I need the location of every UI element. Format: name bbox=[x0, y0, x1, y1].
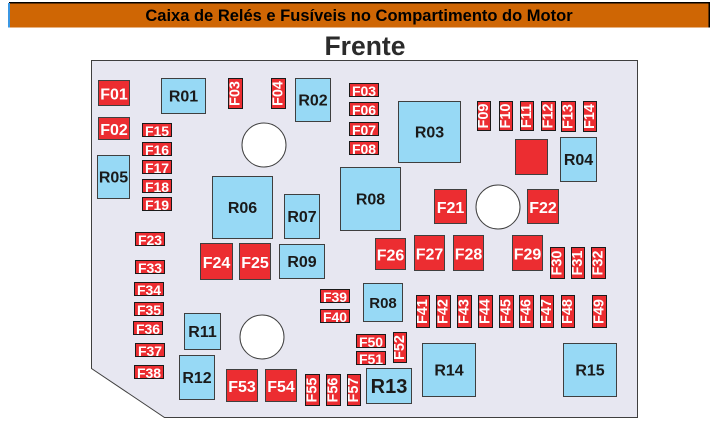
svg-text:F25: F25 bbox=[241, 255, 269, 272]
svg-text:F29: F29 bbox=[514, 247, 542, 264]
svg-text:F22: F22 bbox=[529, 200, 557, 217]
svg-text:R11: R11 bbox=[188, 324, 217, 341]
svg-text:F04: F04 bbox=[271, 81, 287, 106]
svg-text:F43: F43 bbox=[457, 299, 473, 324]
svg-text:F09: F09 bbox=[476, 104, 492, 129]
svg-text:F24: F24 bbox=[203, 255, 231, 272]
svg-text:F53: F53 bbox=[228, 379, 256, 396]
svg-text:R01: R01 bbox=[169, 89, 198, 106]
svg-text:F56: F56 bbox=[326, 378, 342, 403]
svg-text:F50: F50 bbox=[359, 334, 383, 350]
svg-text:R05: R05 bbox=[99, 170, 128, 187]
svg-text:F46: F46 bbox=[519, 299, 535, 324]
svg-text:F54: F54 bbox=[267, 379, 295, 396]
svg-text:F32: F32 bbox=[591, 251, 607, 276]
svg-text:F44: F44 bbox=[478, 299, 494, 324]
svg-text:F34: F34 bbox=[137, 282, 161, 298]
svg-text:R08: R08 bbox=[369, 295, 397, 312]
svg-text:F02: F02 bbox=[100, 122, 128, 139]
svg-text:R07: R07 bbox=[287, 209, 316, 226]
svg-text:F37: F37 bbox=[138, 343, 162, 359]
svg-text:F27: F27 bbox=[416, 247, 444, 264]
svg-text:F03: F03 bbox=[352, 83, 376, 99]
svg-text:F16: F16 bbox=[145, 142, 169, 158]
svg-text:F47: F47 bbox=[539, 299, 555, 324]
svg-text:F11: F11 bbox=[519, 104, 535, 128]
svg-text:F15: F15 bbox=[145, 123, 169, 139]
svg-text:F18: F18 bbox=[145, 179, 169, 195]
svg-text:F41: F41 bbox=[415, 299, 431, 324]
svg-text:R15: R15 bbox=[575, 363, 604, 380]
svg-text:Frente: Frente bbox=[325, 31, 406, 61]
svg-text:R06: R06 bbox=[228, 200, 257, 217]
svg-text:F17: F17 bbox=[145, 160, 169, 176]
svg-text:F35: F35 bbox=[137, 302, 161, 318]
svg-text:F26: F26 bbox=[377, 248, 405, 265]
svg-text:F36: F36 bbox=[136, 321, 160, 337]
svg-text:F01: F01 bbox=[100, 87, 128, 104]
svg-text:F07: F07 bbox=[352, 122, 376, 138]
svg-text:F39: F39 bbox=[323, 289, 347, 305]
svg-text:F51: F51 bbox=[359, 351, 383, 367]
svg-text:R03: R03 bbox=[415, 125, 444, 142]
svg-text:F42: F42 bbox=[436, 299, 452, 324]
svg-text:R13: R13 bbox=[371, 376, 408, 398]
svg-text:F12: F12 bbox=[541, 104, 557, 129]
svg-text:F03: F03 bbox=[228, 81, 244, 106]
svg-text:F14: F14 bbox=[582, 104, 598, 129]
svg-text:R04: R04 bbox=[564, 152, 593, 169]
svg-text:F45: F45 bbox=[499, 299, 515, 324]
svg-text:F52: F52 bbox=[392, 335, 408, 360]
svg-text:F10: F10 bbox=[498, 104, 514, 129]
svg-text:F30: F30 bbox=[550, 251, 566, 276]
svg-text:F19: F19 bbox=[145, 197, 169, 213]
svg-text:R09: R09 bbox=[287, 254, 316, 271]
svg-text:F31: F31 bbox=[570, 251, 586, 276]
svg-text:F40: F40 bbox=[323, 309, 347, 325]
svg-text:F55: F55 bbox=[305, 378, 321, 403]
svg-text:F38: F38 bbox=[137, 365, 161, 381]
svg-text:F23: F23 bbox=[138, 232, 162, 248]
svg-text:F08: F08 bbox=[352, 141, 376, 157]
svg-text:Caixa de Relés e Fusíveis no C: Caixa de Relés e Fusíveis no Compartimen… bbox=[145, 7, 573, 25]
svg-text:F48: F48 bbox=[560, 299, 576, 324]
svg-text:F28: F28 bbox=[455, 247, 483, 264]
svg-text:F21: F21 bbox=[437, 200, 465, 217]
svg-text:F13: F13 bbox=[561, 104, 577, 129]
svg-text:R12: R12 bbox=[182, 370, 211, 387]
svg-text:R02: R02 bbox=[298, 93, 327, 110]
svg-text:F06: F06 bbox=[352, 102, 376, 118]
svg-text:F57: F57 bbox=[346, 378, 362, 403]
svg-text:F33: F33 bbox=[138, 260, 162, 276]
svg-text:F49: F49 bbox=[592, 299, 608, 324]
svg-text:R08: R08 bbox=[356, 192, 385, 209]
svg-text:R14: R14 bbox=[434, 363, 463, 380]
